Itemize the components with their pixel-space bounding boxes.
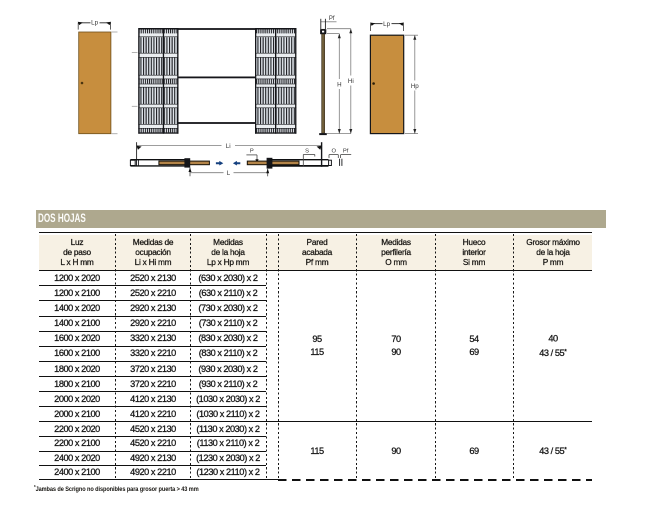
svg-text:Lp: Lp [383, 21, 390, 28]
svg-text:L: L [227, 170, 231, 177]
svg-text:Li: Li [226, 143, 231, 150]
svg-text:O: O [331, 148, 336, 154]
svg-text:S: S [305, 148, 309, 154]
svg-text:Pf: Pf [329, 16, 335, 22]
svg-text:Lp: Lp [91, 20, 98, 27]
svg-text:Hi: Hi [348, 78, 354, 85]
svg-text:Pf: Pf [343, 148, 349, 154]
svg-text:H: H [337, 81, 341, 88]
svg-text:Hp: Hp [411, 83, 419, 90]
svg-text:P: P [250, 149, 254, 155]
